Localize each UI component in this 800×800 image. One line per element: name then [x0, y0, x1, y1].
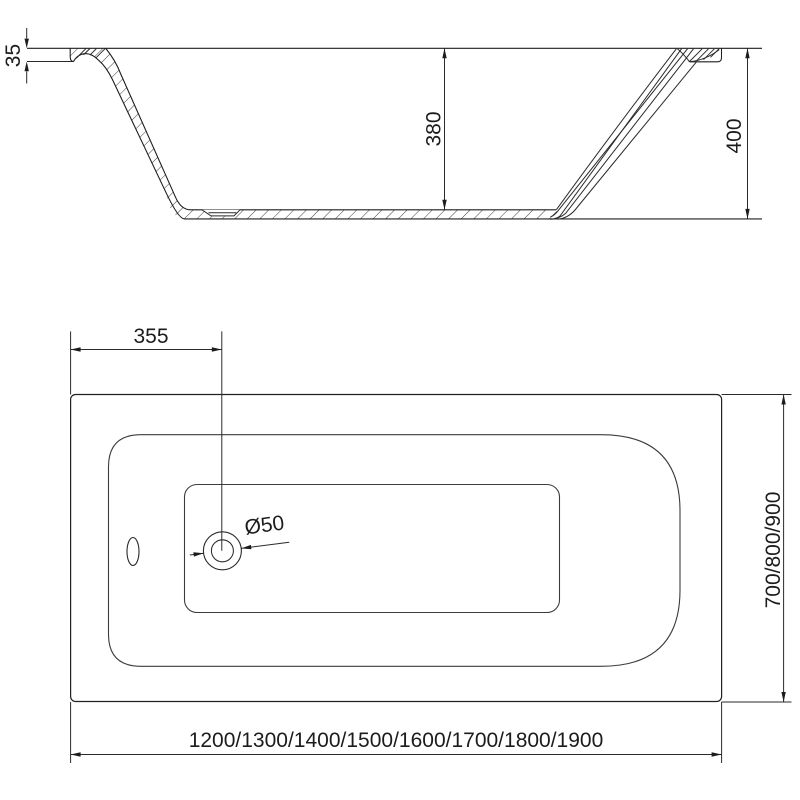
- svg-text:700/800/900: 700/800/900: [762, 492, 785, 609]
- svg-text:355: 355: [133, 325, 168, 348]
- svg-text:380: 380: [423, 111, 446, 146]
- svg-text:35: 35: [2, 44, 25, 67]
- svg-text:400: 400: [723, 118, 746, 153]
- svg-text:Ø50: Ø50: [243, 512, 285, 540]
- svg-text:1200/1300/1400/1500/1600/1700/: 1200/1300/1400/1500/1600/1700/1800/1900: [189, 729, 604, 752]
